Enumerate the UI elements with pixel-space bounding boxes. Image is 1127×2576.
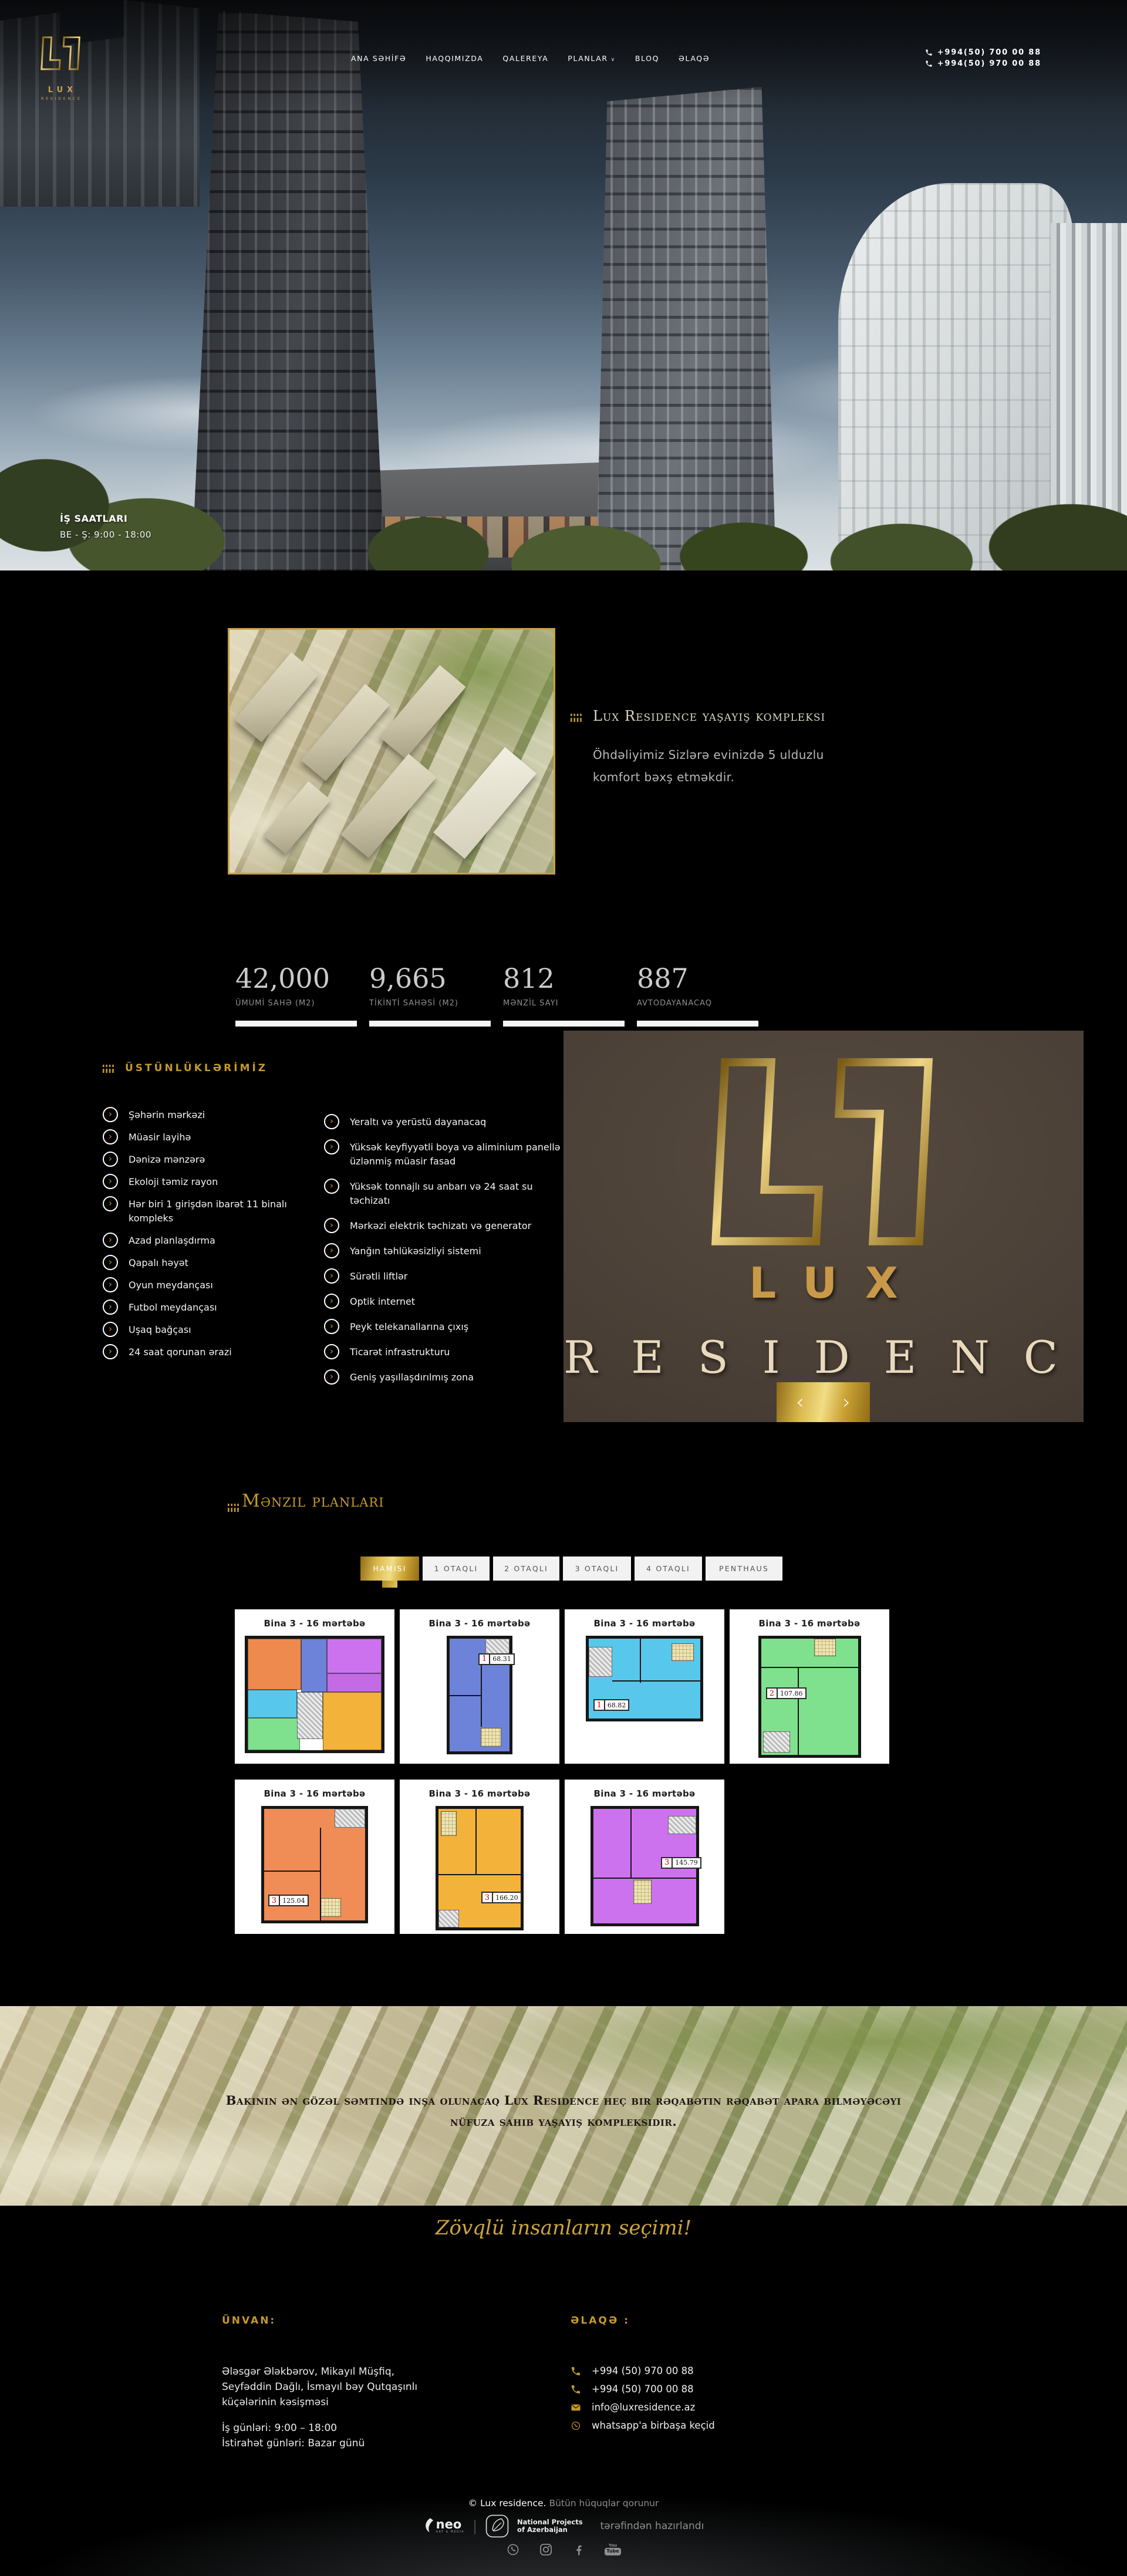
carousel-nav-button[interactable]: ‹ › xyxy=(777,1382,870,1422)
advantage-label: 24 saat qorunan ərazi xyxy=(129,1344,232,1359)
chevron-right-circle-icon: › xyxy=(103,1107,118,1122)
wall-line xyxy=(320,1828,321,1920)
plan-card[interactable]: Bina 3 - 16 mərtəbə168.31 xyxy=(400,1609,559,1764)
chevron-right-circle-icon: › xyxy=(103,1299,118,1315)
plan-unit-number: 1 xyxy=(595,1700,605,1710)
wall-line xyxy=(640,1639,641,1683)
advantage-item: ›Yeraltı və yerüstü dayanacaq xyxy=(324,1114,571,1129)
plan-drawing: 3166.20 xyxy=(436,1806,524,1934)
footer-contacts: +994 (50) 970 00 88+994 (50) 700 00 88in… xyxy=(571,2365,715,2431)
plan-card-title: Bina 3 - 16 mərtəbə xyxy=(400,1618,559,1629)
plan-drawing: 3125.04 xyxy=(261,1806,368,1927)
copyright-text: Bütün hüquqlar qorunur xyxy=(549,2498,659,2509)
plan-area-label: 2107.86 xyxy=(766,1687,807,1699)
advantage-label: Yanğın təhlükəsizliyi sistemi xyxy=(350,1243,481,1258)
advantages-list-left: ›Şəhərin mərkəzi›Müasir layihə›Dənizə mə… xyxy=(103,1107,308,1359)
render-tower xyxy=(263,781,330,854)
apartment-block xyxy=(301,1639,326,1692)
chevron-right-circle-icon: › xyxy=(324,1218,339,1233)
utility-block xyxy=(481,1728,501,1747)
stat-value: 812 xyxy=(503,963,625,994)
stat-underline-bar xyxy=(637,1021,758,1027)
balcony-block xyxy=(589,1647,612,1677)
plan-card-title: Bina 3 - 16 mərtəbə xyxy=(235,1788,394,1799)
advantage-label: Yeraltı və yerüstü dayanacaq xyxy=(350,1114,486,1129)
stat-column: 887AVTODAYANACAQ xyxy=(637,963,758,1027)
plan-drawing: 168.31 xyxy=(447,1636,512,1758)
contact-text: whatsapp'a birbaşa keçid xyxy=(592,2420,715,2431)
site-logo[interactable]: LUX RESIDENCE xyxy=(35,26,86,101)
carousel-prev-icon[interactable]: ‹ xyxy=(796,1392,804,1412)
logo-sub-text: RESIDENCE xyxy=(35,96,86,101)
header-phones: +994(50) 700 00 88+994(50) 970 00 88 xyxy=(925,47,1041,69)
lux-residence-page: İŞ SAATLARI BE - Ş: 9:00 - 18:00 LUX RES… xyxy=(0,0,1127,2576)
chevron-right-circle-icon: › xyxy=(324,1268,339,1284)
footer-schedule-lines: İş günləri: 9:00 – 18:00İstirahət günlər… xyxy=(222,2420,365,2451)
neo-sub-label: ART & MEDIA xyxy=(436,2530,464,2534)
plan-card-title: Bina 3 - 16 mərtəbə xyxy=(565,1618,724,1629)
plans-cards-row1: Bina 3 - 16 mərtəbəBina 3 - 16 mərtəbə16… xyxy=(235,1609,889,1764)
plan-tab-2-otaqli[interactable]: 2 OTAQLI xyxy=(493,1557,559,1581)
youtube-icon[interactable]: YouTube xyxy=(605,2544,620,2555)
plan-tab-1-otaqli[interactable]: 1 OTAQLI xyxy=(423,1557,490,1581)
advantage-item: ›Geniş yaşıllaşdırılmış zona xyxy=(324,1369,571,1385)
phone-number: +994(50) 700 00 88 xyxy=(937,48,1041,57)
chevron-right-circle-icon: › xyxy=(324,1139,339,1154)
advantage-item: ›Optik internet xyxy=(324,1294,571,1309)
advantage-label: Mərkəzi elektrik təchizatı və generator xyxy=(350,1218,531,1233)
advantage-item: ›Ekoloji təmiz rayon xyxy=(103,1174,308,1189)
contact-item[interactable]: info@luxresidence.az xyxy=(571,2402,715,2413)
chevron-right-circle-icon: › xyxy=(324,1243,339,1258)
hero-trees xyxy=(0,452,1127,570)
lux-monogram-3d-icon xyxy=(663,1054,980,1251)
hero-section: İŞ SAATLARI BE - Ş: 9:00 - 18:00 xyxy=(0,0,1127,570)
plan-outline xyxy=(245,1636,384,1753)
phone-icon xyxy=(925,60,933,67)
social-icons-row: YouTube xyxy=(0,2543,1127,2557)
contact-text: info@luxresidence.az xyxy=(592,2402,695,2413)
footer-contact-title: ƏLAQƏ : xyxy=(571,2315,630,2327)
plan-card-title: Bina 3 - 16 mərtəbə xyxy=(235,1618,394,1629)
about-title: Lux Residence yaşayış kompleksi xyxy=(593,708,825,724)
advantage-label: Ekoloji təmiz rayon xyxy=(129,1174,218,1189)
chevron-right-circle-icon: › xyxy=(324,1179,339,1194)
wall-line xyxy=(450,1695,481,1696)
plan-card[interactable]: Bina 3 - 16 mərtəbə3125.04 xyxy=(235,1780,394,1934)
utility-block xyxy=(814,1639,835,1656)
stat-column: 9,665TİKİNTİ SAHƏSİ (M2) xyxy=(369,963,491,1027)
plan-drawing: 3145.79 xyxy=(591,1806,699,1930)
instagram-icon[interactable] xyxy=(539,2543,553,2557)
advantage-label: Geniş yaşıllaşdırılmış zona xyxy=(350,1369,474,1385)
advantage-label: Sürətli liftlər xyxy=(350,1268,407,1284)
utility-block xyxy=(441,1811,457,1836)
nav-item-haqqimizda[interactable]: HAQQIMIZDA xyxy=(426,54,483,63)
balcony-block xyxy=(668,1816,696,1834)
advantages-list-right: ›Yeraltı və yerüstü dayanacaq›Yüksək key… xyxy=(324,1114,571,1385)
plan-outline: 3125.04 xyxy=(261,1806,368,1923)
plan-card[interactable]: Bina 3 - 16 mərtəbə3145.79 xyxy=(565,1780,724,1934)
advantage-item: ›Sürətli liftlər xyxy=(324,1268,571,1284)
plan-area-value: 68.82 xyxy=(605,1700,629,1710)
promo-banner: Bakının ən gözəl səmtində inşa olunacaq … xyxy=(0,2006,1127,2206)
stats-row: 42,000ÜMUMİ SAHƏ (M2)9,665TİKİNTİ SAHƏSİ… xyxy=(235,963,771,1027)
wall-line xyxy=(593,1878,696,1879)
advantage-label: Oyun meydançası xyxy=(129,1277,213,1292)
render-tower xyxy=(235,652,318,742)
national-projects-label: National Projects of Azerbaijan xyxy=(517,2518,583,2534)
about-cityscape-render xyxy=(230,630,554,873)
work-hours-title: İŞ SAATLARI xyxy=(60,513,151,524)
render-tower xyxy=(433,747,536,859)
plan-tab-penthaus[interactable]: PENTHAUS xyxy=(706,1557,782,1581)
render-tower xyxy=(379,665,465,759)
advantage-item: ›Şəhərin mərkəzi xyxy=(103,1107,308,1122)
plan-card-title: Bina 3 - 16 mərtəbə xyxy=(400,1788,559,1799)
advantages-title: ÜSTÜNLÜKLƏRİMİZ xyxy=(125,1062,268,1074)
banner-text-line1: Bakının ən gözəl səmtində inşa olunacaq … xyxy=(0,2093,1127,2108)
plan-card[interactable]: Bina 3 - 16 mərtəbə xyxy=(235,1609,394,1764)
chevron-right-circle-icon: › xyxy=(324,1114,339,1129)
address-line: küçələrinin kəsişməsi xyxy=(222,2395,417,2410)
plan-area-value: 68.31 xyxy=(490,1655,514,1664)
plan-unit-number: 1 xyxy=(480,1655,490,1664)
about-text-line1: Öhdəliyimiz Sizlərə evinizdə 5 ulduzlu xyxy=(593,748,824,762)
apartment-block xyxy=(327,1639,382,1673)
advantage-item: ›Oyun meydançası xyxy=(103,1277,308,1292)
plan-drawing xyxy=(245,1636,384,1757)
work-hours-block: İŞ SAATLARI BE - Ş: 9:00 - 18:00 xyxy=(60,513,151,540)
plan-card-title: Bina 3 - 16 mərtəbə xyxy=(565,1788,724,1799)
advantage-item: ›Ticarət infrastrukturu xyxy=(324,1344,571,1359)
address-line: Ələsgər Ələkbərov, Mikayıl Müşfiq, xyxy=(222,2364,417,2379)
advantage-label: Futbol meydançası xyxy=(129,1299,217,1315)
contact-text: +994 (50) 970 00 88 xyxy=(592,2365,694,2376)
header-phone[interactable]: +994(50) 700 00 88 xyxy=(925,47,1041,58)
plan-tab-hamisi[interactable]: HAMISI xyxy=(360,1557,419,1581)
advantage-label: Azad planlaşdırma xyxy=(129,1233,215,1248)
section-dashes-icon xyxy=(228,1504,241,1515)
stat-value: 887 xyxy=(637,963,758,994)
phone-icon xyxy=(571,2366,581,2376)
contact-item[interactable]: +994 (50) 970 00 88 xyxy=(571,2365,715,2376)
section-dashes-icon xyxy=(103,1065,116,1076)
apartment-block xyxy=(327,1673,382,1692)
stat-value: 9,665 xyxy=(369,963,491,994)
schedule-line: İstirahət günləri: Bazar günü xyxy=(222,2436,365,2451)
plan-drawing: 2107.86 xyxy=(758,1636,861,1761)
about-aerial-image xyxy=(228,628,555,875)
plan-outline: 3166.20 xyxy=(436,1806,524,1930)
plan-area-label: 3145.79 xyxy=(661,1857,701,1869)
advantage-label: Şəhərin mərkəzi xyxy=(129,1107,205,1122)
wall-line xyxy=(264,1871,320,1872)
stat-column: 812MƏNZİL SAYI xyxy=(503,963,625,1027)
schedule-line: İş günləri: 9:00 – 18:00 xyxy=(222,2420,365,2436)
advantage-item: ›Qapalı həyət xyxy=(103,1255,308,1270)
copyright-brand: © Lux residence. xyxy=(468,2498,546,2509)
nav-item-qalereya[interactable]: QALEREYA xyxy=(502,54,548,63)
neo-logo[interactable]: neo ART & MEDIA xyxy=(423,2517,464,2535)
plan-card[interactable]: Bina 3 - 16 mərtəbə3166.20 xyxy=(400,1780,559,1934)
chevron-right-circle-icon: › xyxy=(324,1369,339,1385)
footer-address-title: ÜNVAN: xyxy=(222,2315,276,2327)
apartment-block xyxy=(323,1692,382,1750)
plan-tab-3-otaqli[interactable]: 3 OTAQLI xyxy=(563,1557,631,1581)
plan-area-label: 168.31 xyxy=(478,1653,515,1665)
whatsapp-icon xyxy=(571,2420,581,2431)
advantage-item: ›Yanğın təhlükəsizliyi sistemi xyxy=(324,1243,571,1258)
advantage-item: ›Yüksək keyfiyyətli boya və aliminium pa… xyxy=(324,1139,571,1169)
advantage-label: Hər biri 1 girişdən ibarət 11 binalı kom… xyxy=(129,1196,308,1225)
stat-label: AVTODAYANACAQ xyxy=(637,999,758,1008)
advantage-label: Yüksək keyfiyyətli boya və aliminium pan… xyxy=(350,1139,571,1169)
copyright-line: © Lux residence. Bütün hüquqlar qorunur xyxy=(0,2498,1127,2509)
work-hours-value: BE - Ş: 9:00 - 18:00 xyxy=(60,529,151,540)
logo-brand-text: LUX xyxy=(35,86,86,94)
plan-unit-number: 2 xyxy=(767,1689,778,1698)
plan-area-value: 166.20 xyxy=(493,1893,521,1902)
render-tower xyxy=(301,684,390,781)
apartment-block xyxy=(248,1690,297,1718)
plan-card[interactable]: Bina 3 - 16 mərtəbə168.82 xyxy=(565,1609,724,1764)
address-line: Seyfəddin Dağlı, İsmayıl bəy Qutqaşınlı xyxy=(222,2379,417,2395)
made-by-text: tərəfindən hazırlandı xyxy=(600,2520,704,2532)
logo-divider: | xyxy=(473,2518,477,2534)
balcony-block xyxy=(335,1809,365,1828)
nav-item-ana-səhi̇fə[interactable]: ANA SƏHİFƏ xyxy=(351,54,406,63)
chevron-right-circle-icon: › xyxy=(103,1196,118,1211)
wall-line xyxy=(798,1667,799,1755)
envelope-icon xyxy=(571,2402,581,2413)
national-projects-badge-icon xyxy=(485,2514,509,2538)
made-by-row: neo ART & MEDIA | National Projects of A… xyxy=(0,2513,1127,2539)
chevron-right-circle-icon: › xyxy=(103,1344,118,1359)
nav-item-bloq[interactable]: BLOQ xyxy=(635,54,659,63)
chevron-right-circle-icon: › xyxy=(324,1294,339,1309)
header-phone[interactable]: +994(50) 970 00 88 xyxy=(925,58,1041,69)
banner-text-line2: nüfuza sahib yaşayış kompleksidir. xyxy=(0,2114,1127,2129)
chevron-right-circle-icon: › xyxy=(103,1322,118,1337)
utility-block xyxy=(633,1880,652,1904)
facebook-icon[interactable] xyxy=(572,2543,586,2557)
plans-filter-tabs: HAMISI1 OTAQLI2 OTAQLI3 OTAQLI4 OTAQLIPE… xyxy=(360,1557,782,1581)
tagline-script: Zövqlü insanların seçimi! xyxy=(0,2216,1127,2240)
advantage-item: ›Futbol meydançası xyxy=(103,1299,308,1315)
advantage-label: Qapalı həyət xyxy=(129,1255,188,1270)
wall-line xyxy=(481,1658,482,1727)
stat-label: MƏNZİL SAYI xyxy=(503,999,625,1008)
phone-icon xyxy=(571,2384,581,2395)
chevron-right-circle-icon: › xyxy=(103,1152,118,1167)
plan-outline: 168.82 xyxy=(586,1636,703,1721)
wall-line xyxy=(438,1874,521,1875)
wall-line xyxy=(761,1667,858,1668)
phone-icon xyxy=(925,49,933,56)
apartment-block xyxy=(248,1639,301,1690)
plan-area-label: 3166.20 xyxy=(481,1892,522,1903)
nav-item-əlaqə[interactable]: ƏLAQƏ xyxy=(679,54,710,63)
neo-leaf-icon xyxy=(423,2517,434,2535)
utility-block xyxy=(320,1898,340,1917)
contact-item[interactable]: +994 (50) 700 00 88 xyxy=(571,2383,715,2395)
phone-number: +994(50) 970 00 88 xyxy=(937,59,1041,68)
advantage-item: ›Peyk telekanallarına çıxış xyxy=(324,1319,571,1334)
balcony-block xyxy=(438,1910,459,1927)
plan-unit-number: 3 xyxy=(662,1858,673,1868)
chevron-down-icon: ∨ xyxy=(611,57,616,63)
brand-carousel-panel: LUX RESIDENCE ‹ › xyxy=(563,1031,1084,1422)
advantage-label: Ticarət infrastrukturu xyxy=(350,1344,450,1359)
chevron-right-circle-icon: › xyxy=(324,1344,339,1359)
wall-line xyxy=(630,1809,632,1878)
wall-line xyxy=(612,1680,700,1682)
balcony-block xyxy=(763,1731,790,1753)
advantage-item: ›Müasir layihə xyxy=(103,1129,308,1144)
about-text-line2: komfort bəxş etməkdir. xyxy=(593,770,734,784)
chevron-right-circle-icon: › xyxy=(103,1255,118,1270)
advantage-item: ›Uşaq bağçası xyxy=(103,1322,308,1337)
nav-item-planlar[interactable]: PLANLAR∨ xyxy=(568,54,616,63)
plan-area-label: 3125.04 xyxy=(268,1895,309,1906)
plan-area-value: 125.04 xyxy=(280,1896,308,1905)
plan-card-title: Bina 3 - 16 mərtəbə xyxy=(730,1618,889,1629)
panel-residence-text: RESIDENCE xyxy=(563,1331,1084,1383)
stat-label: TİKİNTİ SAHƏSİ (M2) xyxy=(369,999,491,1008)
plan-drawing: 168.82 xyxy=(586,1636,703,1725)
plan-tab-4-otaqli[interactable]: 4 OTAQLI xyxy=(635,1557,702,1581)
footer-address-lines: Ələsgər Ələkbərov, Mikayıl Müşfiq,Seyfəd… xyxy=(222,2364,417,2410)
stat-underline-bar xyxy=(235,1021,357,1027)
plans-title: Mənzil planları xyxy=(242,1491,384,1511)
chevron-right-circle-icon: › xyxy=(103,1277,118,1292)
advantage-item: ›Yüksək tonnajlı su anbarı və 24 saat su… xyxy=(324,1179,571,1208)
plan-area-value: 145.79 xyxy=(673,1858,700,1868)
contact-text: +994 (50) 700 00 88 xyxy=(592,2383,694,2395)
core-block xyxy=(297,1692,322,1739)
advantage-label: Optik internet xyxy=(350,1294,415,1309)
stat-underline-bar xyxy=(503,1021,625,1027)
lux-monogram-icon xyxy=(40,26,81,81)
render-tower xyxy=(340,754,436,858)
whatsapp-icon[interactable] xyxy=(506,2543,520,2557)
advantage-label: Müasir layihə xyxy=(129,1129,191,1144)
panel-lux-text: LUX xyxy=(563,1258,1084,1308)
apartment-block xyxy=(248,1718,300,1750)
plan-outline: 2107.86 xyxy=(758,1636,861,1758)
main-nav: ANA SƏHİFƏHAQQIMIZDAQALEREYAPLANLAR∨BLOQ… xyxy=(351,54,710,63)
plan-area-label: 168.82 xyxy=(593,1699,630,1711)
plan-area-value: 107.86 xyxy=(778,1689,805,1698)
plan-card[interactable]: Bina 3 - 16 mərtəbə2107.86 xyxy=(730,1609,889,1764)
advantage-item: ›Dənizə mənzərə xyxy=(103,1152,308,1167)
neo-label: neo xyxy=(436,2518,464,2530)
advantage-item: ›Mərkəzi elektrik təchizatı və generator xyxy=(324,1218,571,1233)
chevron-right-circle-icon: › xyxy=(324,1319,339,1334)
stat-column: 42,000ÜMUMİ SAHƏ (M2) xyxy=(235,963,357,1027)
wall-line xyxy=(475,1809,477,1874)
plan-outline: 168.31 xyxy=(447,1636,512,1754)
plan-outline: 3145.79 xyxy=(591,1806,699,1926)
stat-value: 42,000 xyxy=(235,963,357,994)
contact-item[interactable]: whatsapp'a birbaşa keçid xyxy=(571,2420,715,2431)
advantage-label: Yüksək tonnajlı su anbarı və 24 saat su … xyxy=(350,1179,571,1208)
stat-underline-bar xyxy=(369,1021,491,1027)
chevron-right-circle-icon: › xyxy=(103,1174,118,1189)
advantage-label: Uşaq bağçası xyxy=(129,1322,191,1337)
section-dashes-icon xyxy=(571,714,583,725)
chevron-right-circle-icon: › xyxy=(103,1233,118,1248)
chevron-right-circle-icon: › xyxy=(103,1129,118,1144)
advantage-label: Dənizə mənzərə xyxy=(129,1152,205,1167)
plans-cards-row2: Bina 3 - 16 mərtəbə3125.04Bina 3 - 16 mə… xyxy=(235,1780,724,1934)
hero-buildings-left xyxy=(0,0,200,207)
plan-unit-number: 3 xyxy=(269,1896,280,1905)
carousel-next-icon[interactable]: › xyxy=(842,1392,851,1412)
advantage-item: ›24 saat qorunan ərazi xyxy=(103,1344,308,1359)
advantage-item: ›Azad planlaşdırma xyxy=(103,1233,308,1248)
stat-label: ÜMUMİ SAHƏ (M2) xyxy=(235,999,357,1008)
utility-block xyxy=(672,1643,694,1661)
advantage-item: ›Hər biri 1 girişdən ibarət 11 binalı ko… xyxy=(103,1196,308,1225)
advantage-label: Peyk telekanallarına çıxış xyxy=(350,1319,468,1334)
plan-unit-number: 3 xyxy=(482,1893,493,1902)
